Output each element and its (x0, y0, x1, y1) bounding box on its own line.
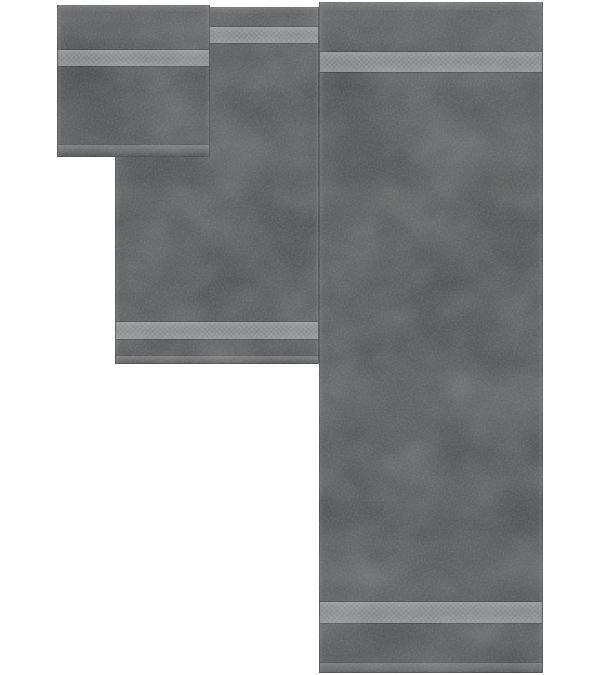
terry-texture (319, 2, 543, 673)
washcloth-dobby-band (58, 50, 209, 66)
bath-towel (319, 2, 543, 673)
product-image (0, 0, 600, 675)
bath-towel-top-dobby-band (320, 52, 542, 72)
hand-towel-bottom-hem (116, 355, 318, 363)
bath-towel-top-hem (320, 2, 542, 10)
bath-towel-bottom-dobby-band (320, 602, 542, 623)
washcloth-top-hem (58, 5, 209, 11)
bath-towel-bottom-hem (320, 662, 542, 672)
hand-towel-bottom-dobby-band (116, 322, 318, 339)
terry-texture (57, 5, 210, 157)
washcloth-bottom-hem (58, 144, 209, 153)
washcloth (57, 5, 210, 157)
